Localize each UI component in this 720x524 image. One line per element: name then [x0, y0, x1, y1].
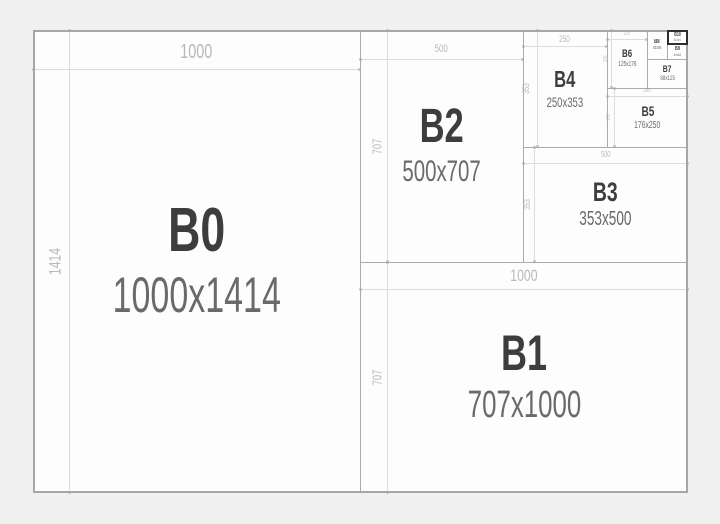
- divider-b5-top: [607, 88, 688, 89]
- paper-b9: B9 44x62: [667, 45, 688, 59]
- sheet: 1000 500 250 125 500 250 1000 1414 707 3…: [33, 30, 688, 493]
- paper-b9-size: 44x62: [674, 53, 681, 58]
- paper-b2-name: B2: [419, 102, 463, 152]
- paper-b0-name: B0: [168, 198, 225, 263]
- divider-b2-right: [523, 30, 524, 262]
- paper-sizes-diagram: 1000 500 250 125 500 250 1000 1414 707 3…: [0, 0, 720, 524]
- paper-b7-name: B7: [663, 65, 672, 75]
- paper-b6-size: 125x176: [618, 61, 636, 69]
- paper-b0-size: 1000x1414: [112, 267, 280, 325]
- paper-b5-name: B5: [641, 104, 654, 119]
- divider-b3-top: [523, 147, 688, 148]
- paper-b4: B4 250x353: [523, 30, 607, 147]
- paper-b2: B2 500x707: [360, 30, 523, 262]
- paper-b1-name: B1: [501, 327, 547, 380]
- paper-b5: B5 176x250: [607, 88, 688, 147]
- paper-b3: B3 353x500: [523, 147, 688, 262]
- paper-b1: B1 707x1000: [360, 262, 688, 493]
- paper-b8-size: 62x88: [653, 45, 661, 50]
- paper-b1-size: 707x1000: [467, 384, 581, 428]
- paper-b3-size: 353x500: [579, 208, 631, 231]
- paper-b4-name: B4: [554, 67, 575, 91]
- paper-b6: B6 125x176: [607, 30, 647, 88]
- divider-b1-top: [360, 262, 688, 263]
- paper-b3-name: B3: [593, 178, 618, 206]
- paper-b4-size: 250x353: [547, 94, 584, 110]
- paper-b7-size: 88x125: [660, 75, 675, 82]
- paper-b7: B7 88x125: [647, 59, 688, 88]
- paper-b0: B0 1000x1414: [33, 30, 360, 492]
- paper-b10-size: 31x44: [674, 38, 681, 42]
- paper-b8: B8 62x88: [647, 30, 667, 59]
- paper-b5-size: 176x250: [634, 120, 660, 132]
- paper-b10-highlighted: B10 31x44: [667, 30, 688, 45]
- paper-b6-name: B6: [622, 49, 632, 61]
- divider-b7-top: [647, 59, 688, 60]
- paper-b2-size: 500x707: [402, 155, 480, 190]
